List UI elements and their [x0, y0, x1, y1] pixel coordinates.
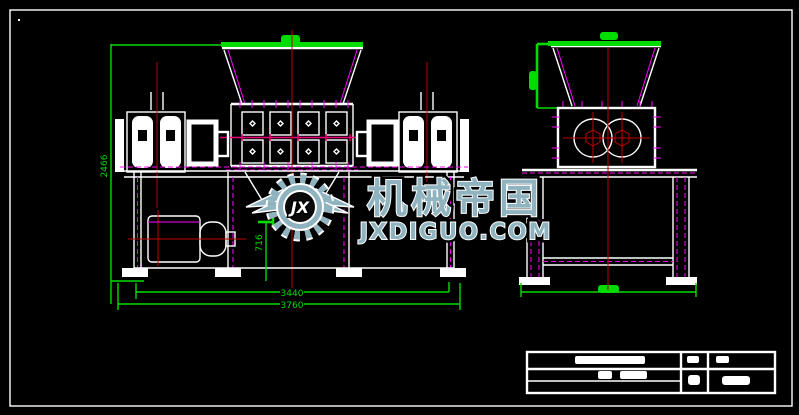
dim-label-2466: 2466	[100, 154, 110, 177]
foot	[666, 277, 697, 285]
dim-text-blob	[600, 32, 618, 40]
bearing-block	[160, 116, 181, 168]
bearing-slot	[166, 130, 175, 141]
titleblock-text-blob	[722, 376, 750, 385]
bolt-icon	[250, 121, 255, 126]
bolt-icon	[250, 149, 255, 154]
foot	[440, 268, 466, 277]
corner-mark	[18, 19, 20, 21]
shredder-box	[552, 108, 661, 167]
bolt-icon	[306, 121, 311, 126]
title-block	[527, 352, 775, 393]
titleblock-text-blob	[687, 356, 699, 363]
dimension-overall-height: 2466	[100, 44, 221, 304]
watermark-brand: 机械帝国	[367, 176, 543, 222]
titleblock-text-blob	[688, 375, 700, 385]
bolt-icon	[306, 149, 311, 154]
bolt-icon	[334, 121, 339, 126]
drive-assembly-left	[115, 62, 228, 208]
coupling	[369, 122, 396, 164]
titleblock-text-blob	[716, 356, 729, 363]
coupling	[189, 122, 216, 164]
side-view	[519, 32, 697, 297]
end-plate	[460, 119, 469, 172]
dimension-discharge-height: 716	[255, 217, 273, 281]
bearing-block	[132, 116, 153, 168]
gear-logo-icon: JX	[272, 179, 328, 235]
dim-text-blob	[529, 71, 537, 90]
bolt-icon	[278, 121, 283, 126]
dim-text-blob	[281, 35, 300, 44]
dim-label-3760: 3760	[281, 301, 304, 311]
titleblock-text-blob	[598, 371, 612, 379]
titleblock-text-blob	[620, 371, 647, 379]
titleblock-title-blob	[575, 356, 645, 364]
cad-canvas: 2466 716 3440 3760	[0, 0, 799, 415]
watermark-site: JXDIGUO.COM	[358, 220, 553, 245]
foot	[122, 268, 148, 277]
dimension-side-hopper-width	[548, 32, 661, 46]
bearing-slot	[409, 130, 418, 141]
dim-label-716: 716	[255, 234, 265, 251]
bearing-slot	[138, 130, 147, 141]
foot	[215, 268, 241, 277]
bolt-icon	[334, 149, 339, 154]
hopper-side	[551, 46, 661, 109]
bearing-slot	[437, 130, 446, 141]
bearing-block	[403, 116, 424, 168]
cad-viewport: 2466 716 3440 3760	[0, 0, 799, 415]
foot	[519, 277, 550, 285]
bolt-icon	[278, 149, 283, 154]
dim-label-3440: 3440	[281, 289, 304, 299]
foot	[336, 268, 362, 277]
end-plate	[115, 119, 124, 172]
cutting-chamber	[220, 100, 358, 170]
front-view: 2466 716 3440 3760	[100, 30, 469, 311]
bearing-block	[431, 116, 452, 168]
logo-monogram: JX	[288, 198, 310, 217]
